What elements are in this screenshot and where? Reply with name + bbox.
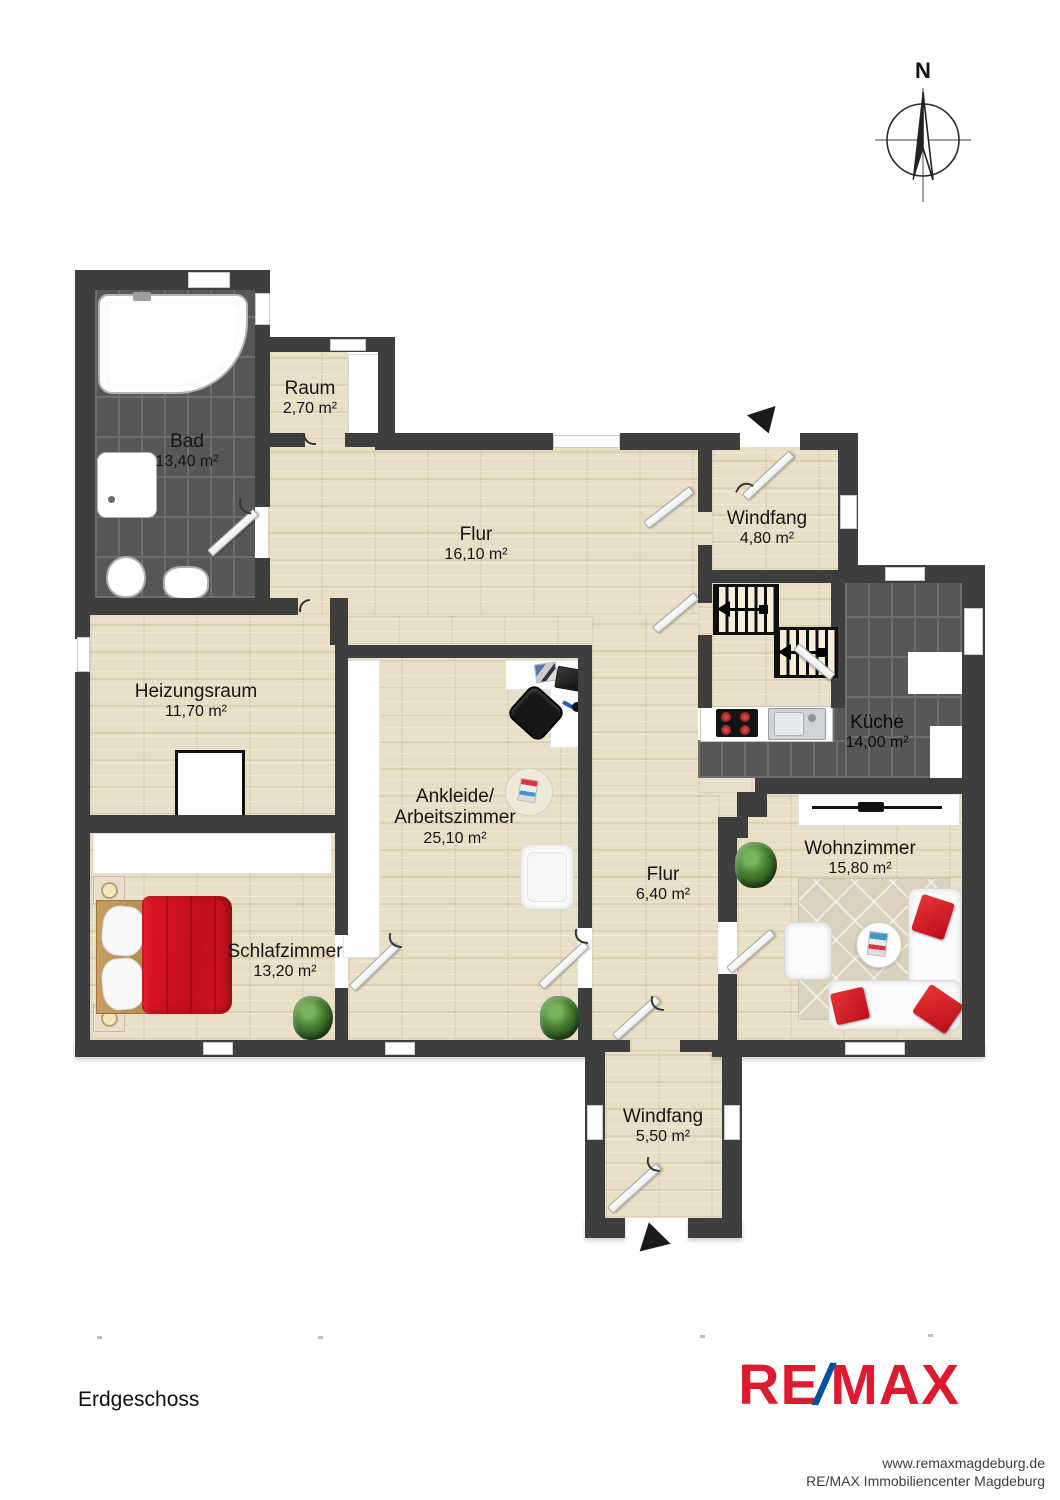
entrance-arrow-icon bbox=[747, 406, 783, 438]
window bbox=[885, 567, 925, 581]
room-label-raum: Raum 2,70 m² bbox=[250, 378, 370, 419]
floorplan-page: Bad 13,40 m² Raum 2,70 m² Flur 16,10 m² … bbox=[0, 0, 1060, 1500]
stair-arrow-end-icon bbox=[818, 648, 827, 657]
wall bbox=[718, 817, 748, 838]
window bbox=[385, 1042, 415, 1055]
floor-patch-door bbox=[698, 603, 712, 635]
bed-pillow bbox=[100, 904, 146, 957]
footer-company: RE/MAX Immobiliencenter Magdeburg bbox=[560, 1472, 1045, 1490]
floor-patch-windfang bbox=[630, 1040, 680, 1052]
tick-mark bbox=[700, 1335, 705, 1338]
room-label-ankleide: Ankleide/ Arbeitszimmer 25,10 m² bbox=[355, 786, 555, 849]
window bbox=[188, 272, 230, 288]
wall bbox=[698, 635, 712, 708]
stove-burner-icon bbox=[721, 712, 731, 722]
wall bbox=[680, 1040, 722, 1052]
compass-rose: N bbox=[845, 58, 1001, 213]
window bbox=[203, 1042, 233, 1055]
room-label-windfang-top: Windfang 4,80 m² bbox=[687, 508, 847, 549]
stair-arrow-end-icon bbox=[759, 605, 768, 614]
window bbox=[77, 637, 90, 672]
wall bbox=[75, 270, 95, 602]
bed-pillow bbox=[100, 956, 146, 1011]
floor-title: Erdgeschoss bbox=[78, 1388, 199, 1412]
floor-patch-step bbox=[718, 794, 737, 817]
wall bbox=[335, 988, 348, 1040]
stove-burner-icon bbox=[740, 725, 750, 735]
room-label-flur: Flur 16,10 m² bbox=[396, 524, 556, 565]
stair-arrow-head-icon bbox=[717, 601, 730, 617]
wall bbox=[962, 790, 985, 1055]
wall bbox=[255, 433, 305, 447]
stair-arrow-head-icon bbox=[778, 644, 791, 660]
window bbox=[330, 339, 366, 351]
wall bbox=[578, 988, 592, 1040]
room-label-flur-klein: Flur 6,40 m² bbox=[583, 864, 743, 905]
room-label-kueche: Küche 14,00 m² bbox=[797, 712, 957, 753]
tick-mark bbox=[928, 1334, 933, 1337]
floor-flur-strip bbox=[345, 615, 592, 645]
tick-mark bbox=[97, 1336, 102, 1339]
wall bbox=[688, 1218, 742, 1238]
wall bbox=[75, 1040, 595, 1057]
toilet bbox=[106, 556, 146, 598]
stove-burner-icon bbox=[740, 712, 750, 722]
compass-icon bbox=[845, 86, 1001, 208]
window bbox=[255, 293, 270, 325]
wall bbox=[375, 433, 553, 450]
wall bbox=[962, 565, 985, 790]
wall bbox=[605, 1040, 630, 1052]
wall bbox=[75, 672, 90, 1057]
living-armchair bbox=[784, 922, 832, 980]
staircase-upper bbox=[713, 584, 779, 635]
wall bbox=[330, 598, 348, 645]
stove-burner-icon bbox=[721, 725, 731, 735]
kitchen-cabinet bbox=[908, 652, 962, 694]
wall bbox=[755, 778, 985, 794]
entrance-arrow-icon bbox=[633, 1219, 670, 1252]
wall bbox=[255, 558, 270, 600]
wall bbox=[255, 337, 395, 352]
plant-icon bbox=[293, 996, 333, 1040]
wall bbox=[620, 433, 712, 450]
wall bbox=[698, 450, 712, 512]
nightstand-lamp-icon bbox=[101, 882, 118, 899]
wall bbox=[737, 792, 767, 817]
room-label-heizungsraum: Heizungsraum 11,70 m² bbox=[96, 681, 296, 722]
room-label-schlafzimmer: Schlafzimmer 13,20 m² bbox=[185, 941, 385, 982]
logo-re: RE bbox=[738, 1353, 819, 1417]
wall bbox=[75, 270, 270, 290]
wall bbox=[75, 815, 345, 833]
room-label-wohnzimmer: Wohnzimmer 15,80 m² bbox=[760, 838, 960, 879]
wall bbox=[698, 570, 838, 583]
logo-max: MAX bbox=[830, 1353, 960, 1417]
wall bbox=[718, 974, 737, 1040]
tick-mark bbox=[318, 1336, 323, 1339]
wall bbox=[75, 598, 298, 615]
window bbox=[553, 435, 620, 448]
schlafzimmer-wardrobe bbox=[93, 833, 332, 874]
bidet bbox=[163, 566, 209, 600]
wall bbox=[712, 433, 740, 450]
heater bbox=[175, 750, 245, 824]
wall bbox=[335, 645, 592, 658]
room-label-windfang-bottom: Windfang 5,50 m² bbox=[583, 1106, 743, 1147]
window bbox=[964, 608, 983, 655]
shower-drain-icon bbox=[108, 496, 115, 503]
armchair-cushion bbox=[527, 852, 567, 902]
remax-logo: RE/MAX bbox=[640, 1352, 960, 1418]
tv-base-icon bbox=[858, 802, 884, 812]
compass-north-label: N bbox=[845, 58, 1001, 84]
room-label-bad: Bad 13,40 m² bbox=[117, 431, 257, 472]
wall bbox=[345, 433, 378, 447]
footer-website: www.remaxmagdeburg.de bbox=[560, 1454, 1045, 1472]
wall bbox=[585, 1218, 625, 1238]
table-magazine bbox=[867, 931, 889, 957]
wall bbox=[335, 658, 348, 935]
bathtub-faucet-icon bbox=[133, 292, 151, 301]
floor-corridor-upper bbox=[592, 615, 698, 787]
plant-icon bbox=[540, 996, 580, 1040]
footer-contact: www.remaxmagdeburg.de RE/MAX Immobilienc… bbox=[560, 1454, 1045, 1490]
window bbox=[845, 1042, 905, 1055]
